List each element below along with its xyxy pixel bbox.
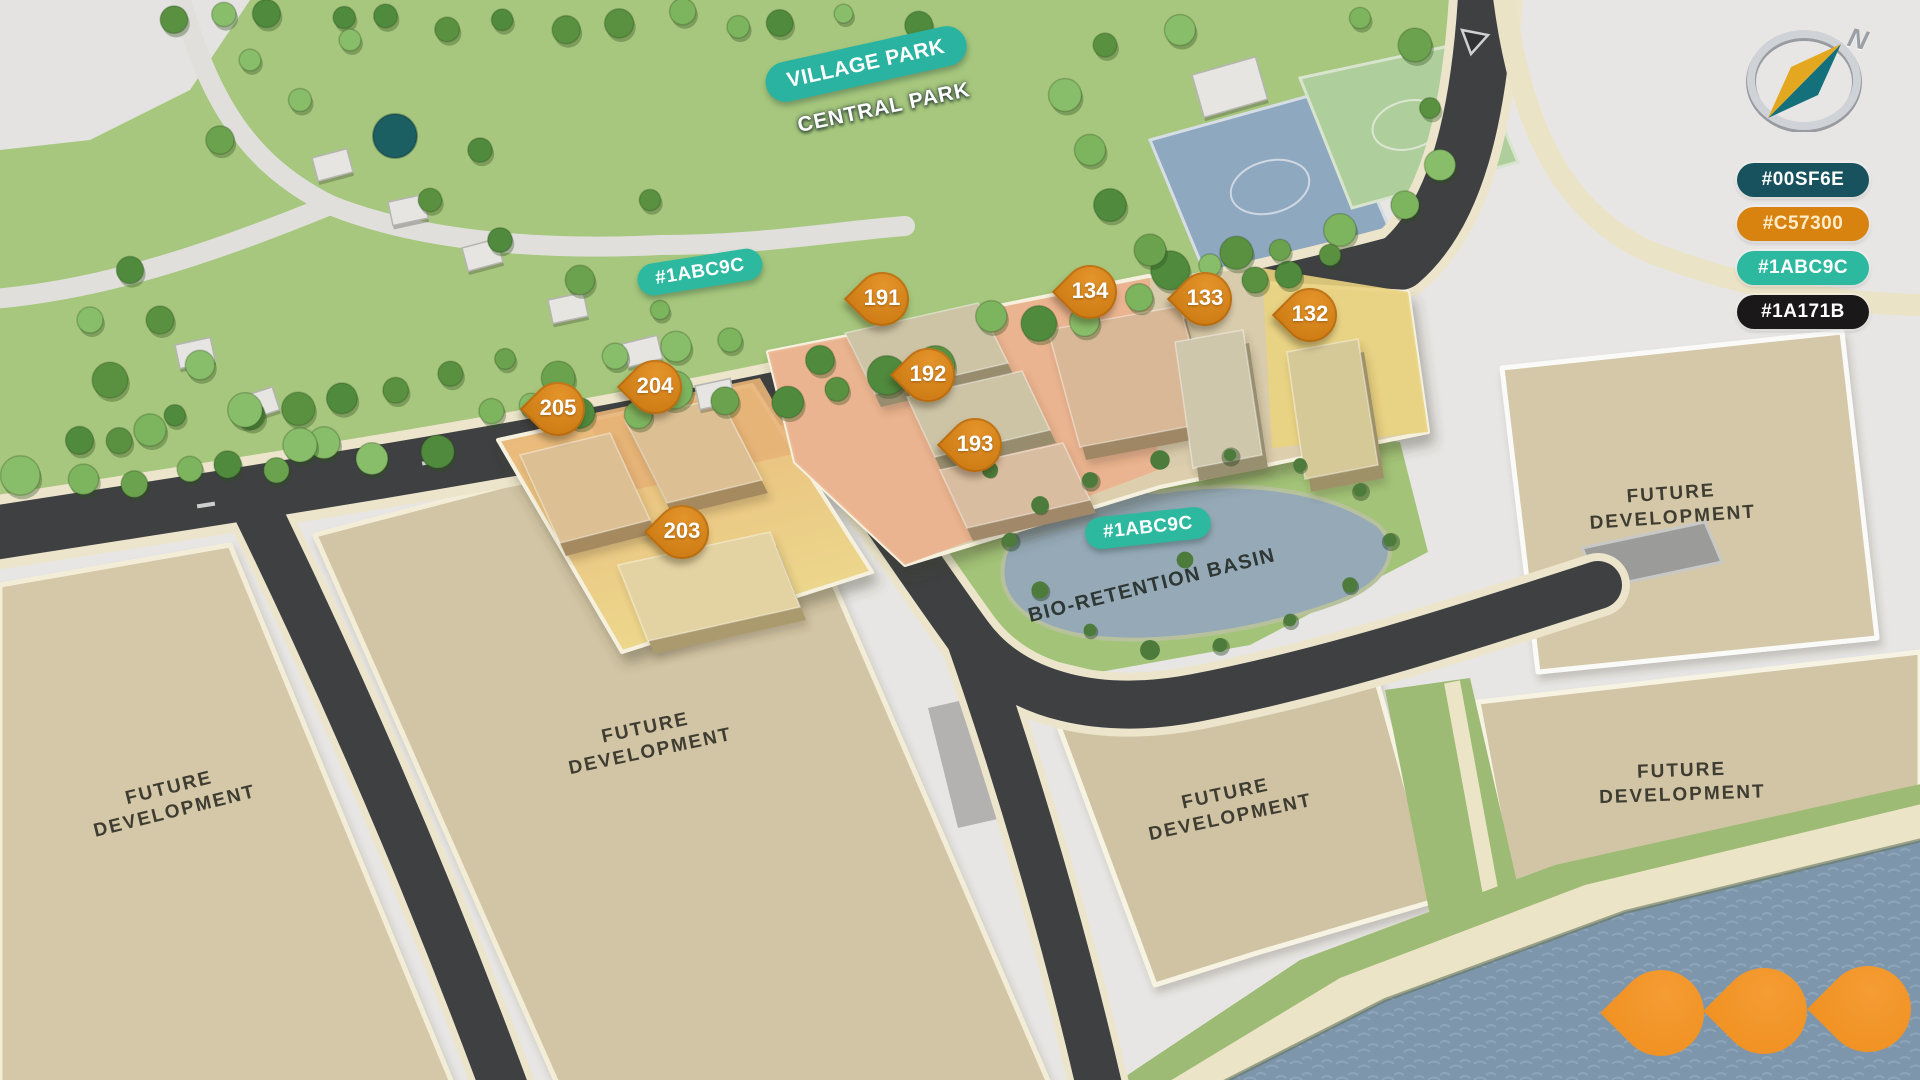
- legend-chip[interactable]: #1ABC9C: [1737, 251, 1869, 285]
- legend-chip[interactable]: #1A171B: [1737, 295, 1869, 329]
- pin-label: 204: [628, 361, 682, 411]
- pin-label: 203: [655, 506, 709, 556]
- pin-label: 132: [1283, 289, 1337, 339]
- pin-label: 134: [1063, 266, 1117, 316]
- pin-label: 192: [901, 349, 955, 399]
- pin-label: 133: [1178, 273, 1232, 323]
- legend-chip[interactable]: #C57300: [1737, 207, 1869, 241]
- pin-label: 205: [531, 383, 585, 433]
- map-canvas: [0, 0, 1920, 1080]
- pin-label: 191: [855, 273, 909, 323]
- compass: N: [1744, 22, 1874, 132]
- legend-chip[interactable]: #00SF6E: [1737, 163, 1869, 197]
- color-legend: #00SF6E #C57300 #1ABC9C #1A171B: [1737, 163, 1869, 329]
- site-plan-map: { "labels": { "village_park": "VILLAGE P…: [0, 0, 1920, 1080]
- pin-label: 193: [948, 419, 1002, 469]
- parcel-label-bottom-right: FUTURE DEVELOPMENT: [1551, 755, 1812, 812]
